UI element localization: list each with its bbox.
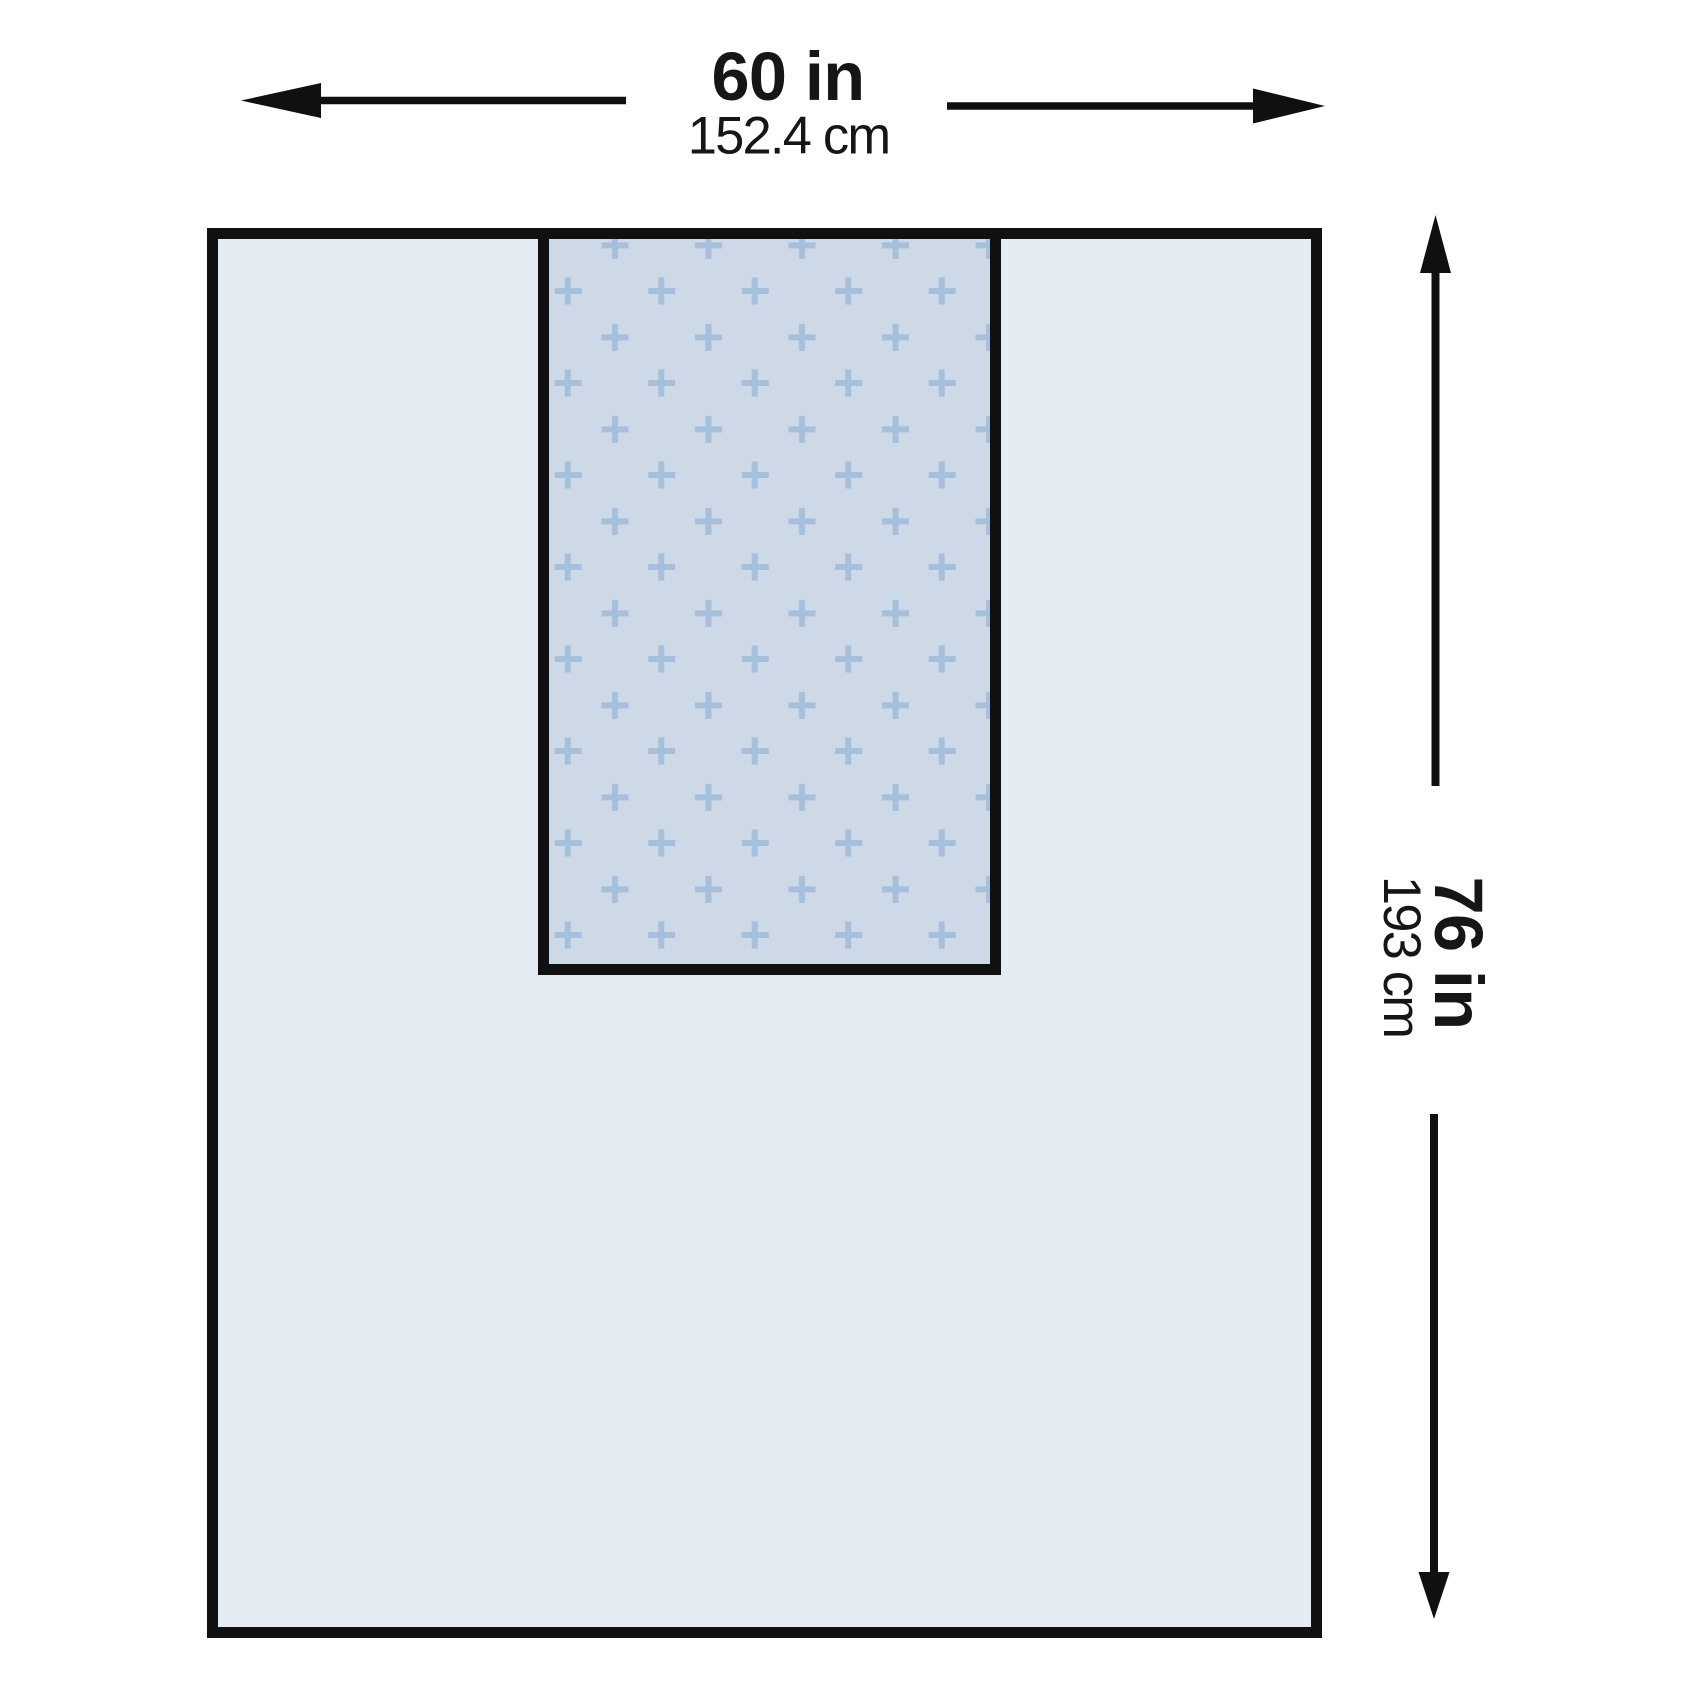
svg-text:152.4 cm: 152.4 cm bbox=[688, 107, 890, 166]
svg-text:60 in: 60 in bbox=[711, 38, 864, 115]
svg-text:193 cm: 193 cm bbox=[1372, 876, 1431, 1037]
